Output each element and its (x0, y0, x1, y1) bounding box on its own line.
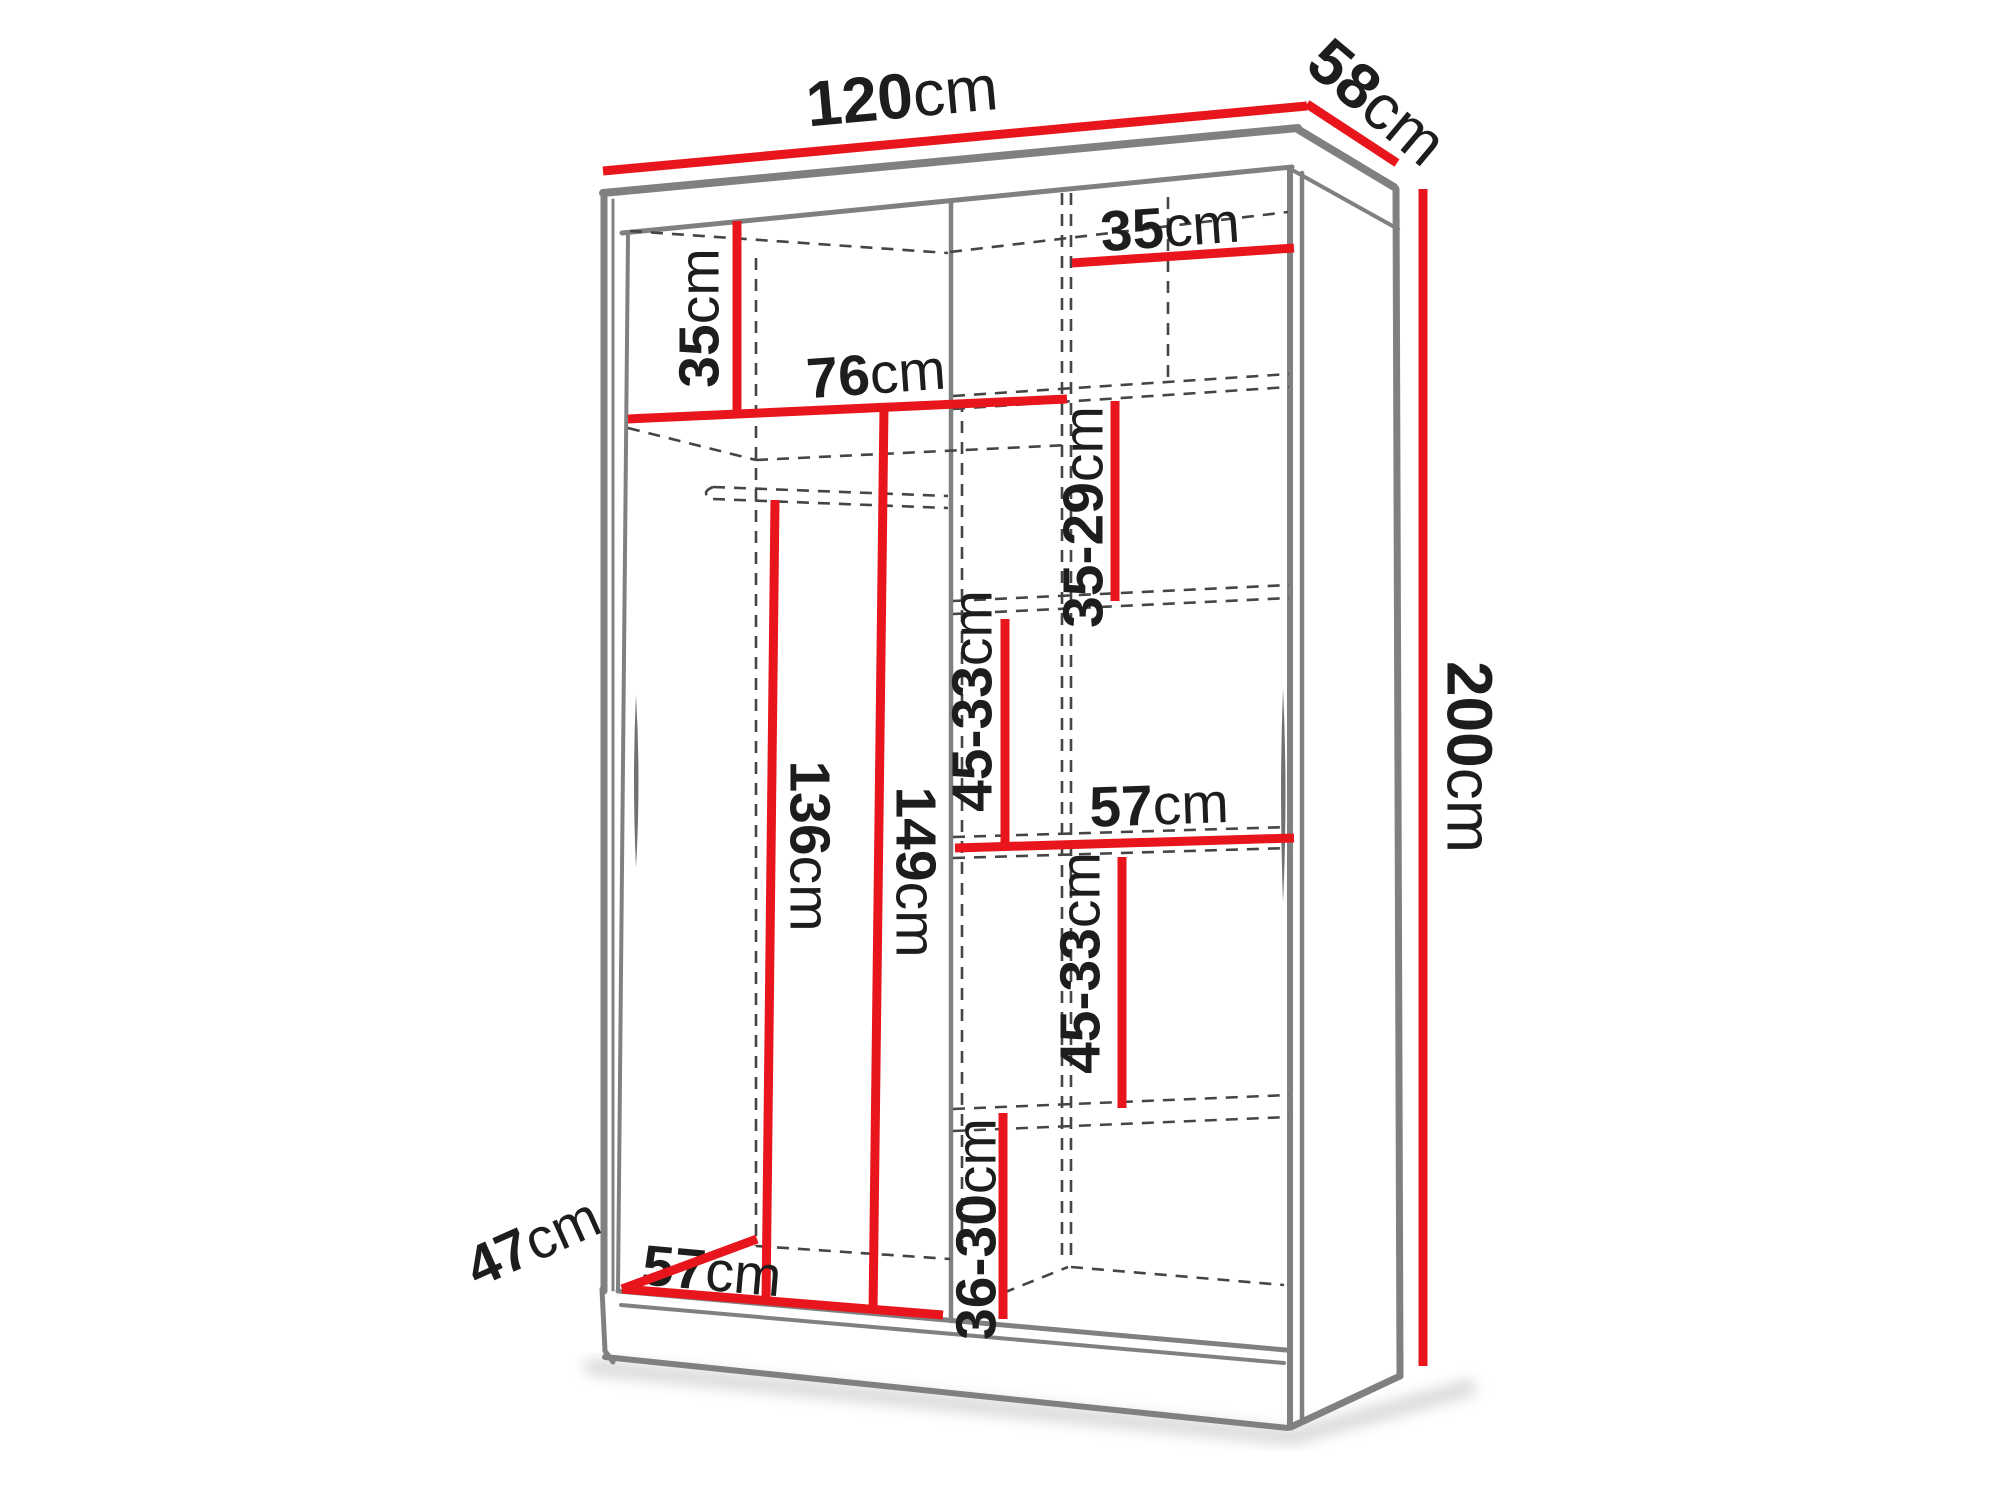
dimension-label-right-gap-top: 35-29cm (1051, 406, 1115, 628)
construction-line-left-shelf-back (756, 445, 1069, 460)
dimension-unit-right-gap-bottom: cm (944, 1118, 1008, 1194)
dimension-value-right-gap-upper-mid: 45-33 (940, 666, 1004, 812)
dimension-unit-left-section-width: cm (868, 338, 948, 407)
dimension-label-overall-width: 120cm (803, 51, 1001, 140)
construction-line-floor-diag-right (1003, 1267, 1068, 1293)
dimension-label-left-interior-height: 149cm (884, 786, 948, 957)
dimension-value-right-top-shelf-width: 35 (1098, 196, 1166, 264)
dimension-line-left-hanging-space (766, 500, 775, 1303)
dimension-label-bottom-depth: 47cm (456, 1185, 609, 1300)
dimension-label-right-gap-upper-mid: 45-33cm (940, 590, 1004, 812)
wardrobe-dimension-diagram: 120cm58cm200cm35cm76cm35cm35-29cm45-33cm… (0, 0, 2000, 1500)
dimension-unit-left-top-shelf-height: cm (667, 248, 731, 324)
dimension-label-overall-depth: 58cm (1294, 24, 1460, 180)
dimension-unit-left-interior-height: cm (884, 882, 948, 958)
construction-line-floor-back-left (756, 1246, 950, 1259)
dimension-label-overall-height: 200cm (1433, 661, 1505, 853)
cabinet-edge-right-outer (1396, 189, 1400, 1376)
door-edge-highlight-right-door-edge (1281, 688, 1286, 902)
dimension-label-left-top-shelf-height: 35cm (667, 248, 731, 387)
cabinet-edge-plinth-left (602, 1289, 613, 1362)
construction-line-floor-back-right (1071, 1267, 1284, 1285)
dimension-label-right-shelf-width: 57cm (1088, 771, 1230, 840)
dimension-unit-left-hanging-space: cm (778, 856, 842, 932)
dimension-unit-right-shelf-width: cm (1152, 771, 1230, 838)
dimension-unit-right-top-shelf-width: cm (1162, 191, 1242, 260)
construction-line-hanging-rail-bottom (713, 499, 948, 508)
dimension-unit-overall-width: cm (909, 51, 1001, 131)
diagram-canvas: 120cm58cm200cm35cm76cm35cm35-29cm45-33cm… (0, 0, 2000, 1500)
dimension-value-right-gap-lower-mid: 45-33 (1048, 928, 1112, 1074)
dimension-value-left-hanging-space: 136 (778, 760, 842, 855)
construction-line-right-shelf-1a (953, 374, 1289, 396)
dimension-value-left-top-shelf-height: 35 (667, 324, 731, 387)
dimension-label-right-gap-bottom: 36-30cm (944, 1118, 1008, 1340)
dimension-label-right-gap-lower-mid: 45-33cm (1048, 852, 1112, 1074)
dimension-value-right-shelf-width: 57 (1088, 774, 1154, 840)
dimension-value-left-section-width: 76 (804, 343, 872, 411)
dimension-value-right-gap-bottom: 36-30 (944, 1194, 1008, 1340)
dimension-value-left-interior-height: 149 (884, 786, 948, 881)
dimension-line-left-interior-height (873, 407, 884, 1313)
door-edge-highlight-left-door-edge (634, 695, 639, 868)
dimension-unit-right-gap-lower-mid: cm (1048, 852, 1112, 928)
screenshot-root: { "diagram": { "description": "Sliding-d… (0, 0, 2000, 1500)
dimension-value-right-gap-top: 35-29 (1051, 482, 1115, 628)
dimension-value-overall-height: 200 (1433, 661, 1505, 768)
cabinet-edge-plinth-bottom (605, 1357, 1288, 1428)
dimension-unit-overall-height: cm (1433, 768, 1505, 853)
dimension-unit-bottom-left-width: cm (703, 1239, 784, 1309)
dimension-label-left-section-width: 76cm (804, 338, 948, 412)
construction-line-left-shelf-diagonal (628, 428, 756, 460)
dimension-unit-right-gap-top: cm (1051, 406, 1115, 482)
dimension-unit-right-gap-upper-mid: cm (940, 590, 1004, 666)
construction-line-hanging-rail-top (713, 487, 948, 496)
cabinet-edge-left-inner-wall (618, 236, 628, 1290)
dimension-label-right-top-shelf-width: 35cm (1098, 191, 1242, 265)
dimension-value-overall-width: 120 (803, 59, 916, 141)
construction-line-hanging-rail-end (706, 487, 713, 499)
dimension-label-left-hanging-space: 136cm (778, 760, 842, 931)
